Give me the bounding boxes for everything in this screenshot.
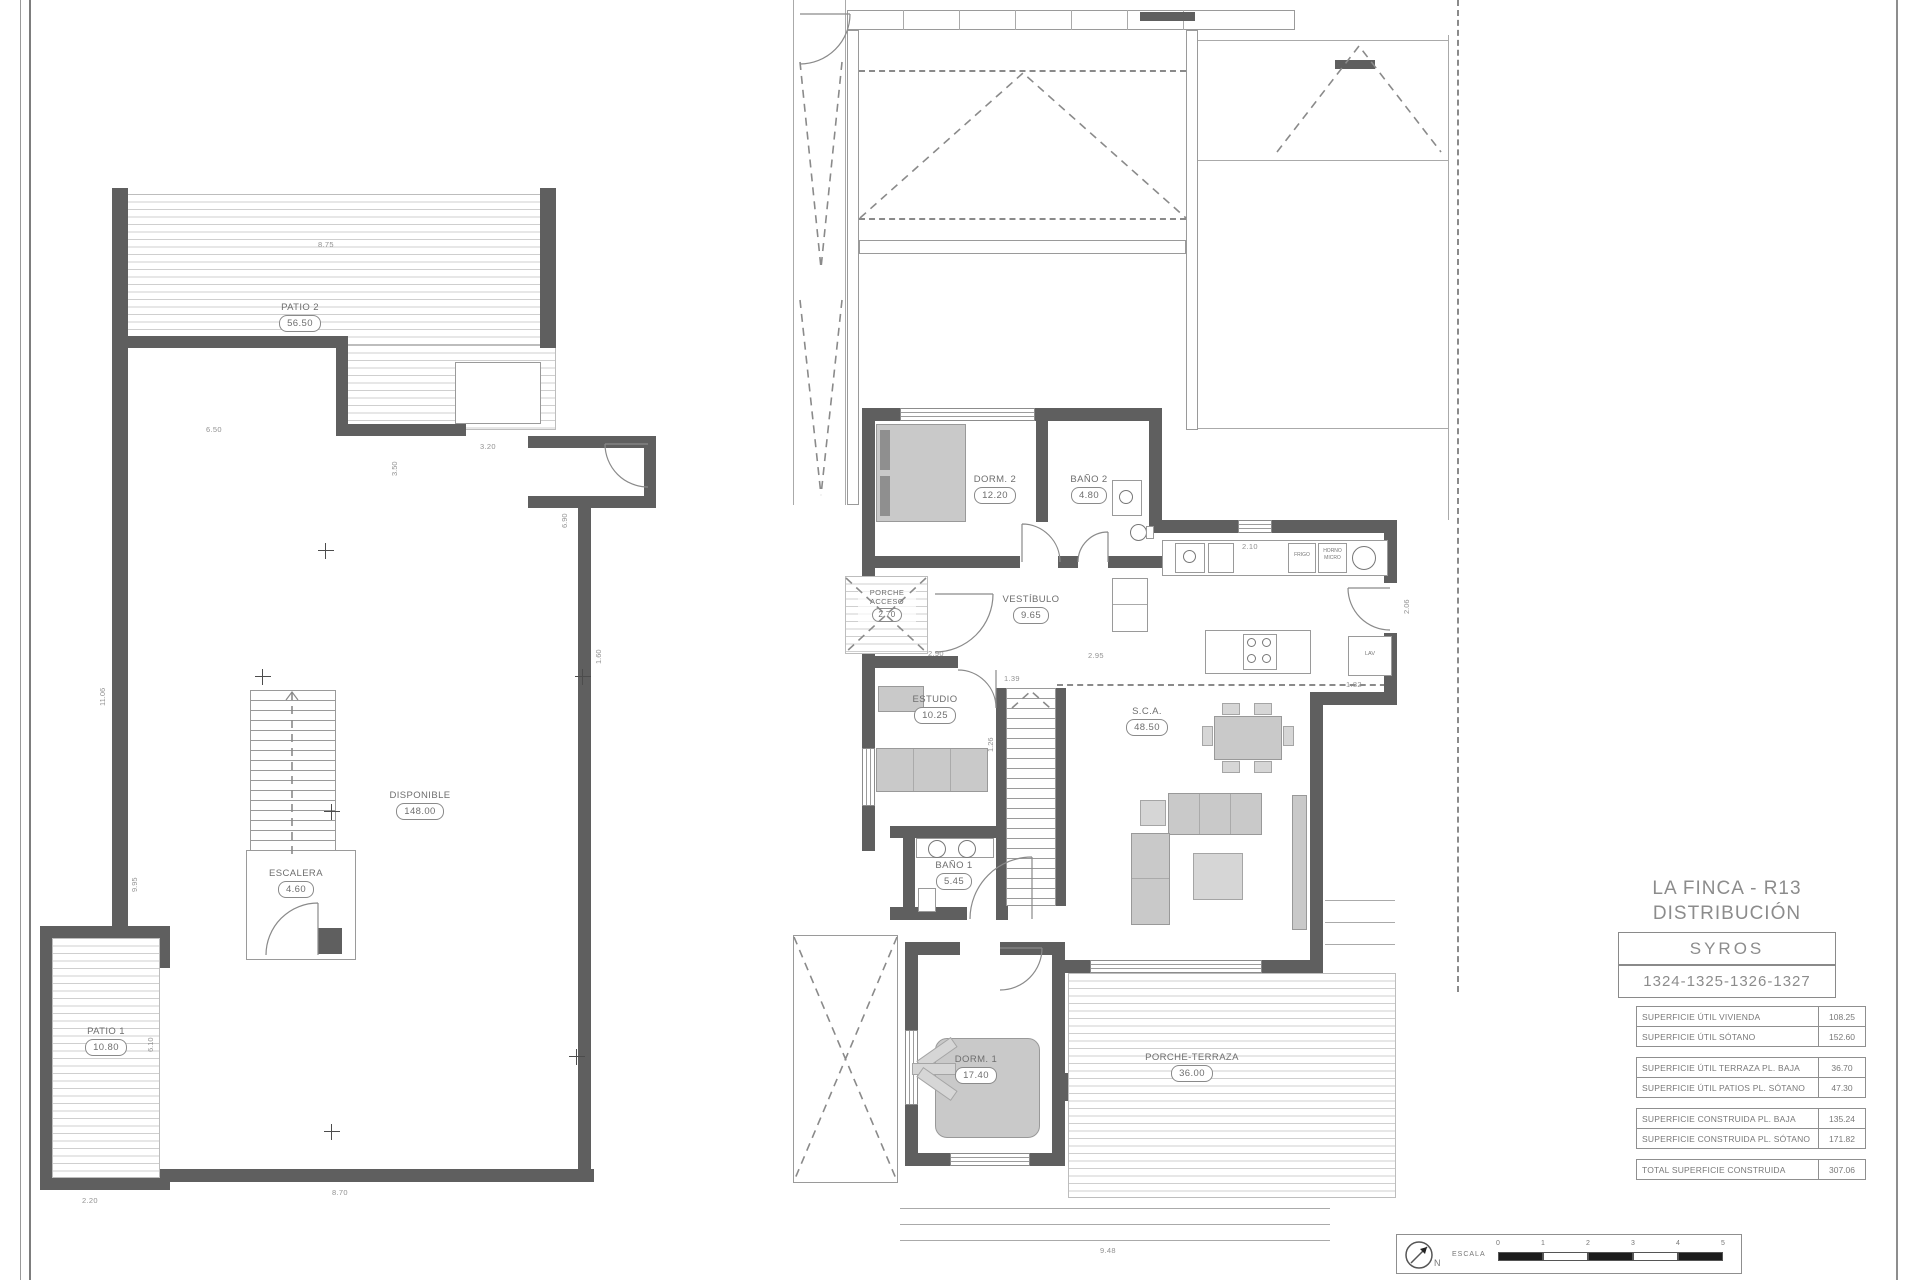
area-table-group: SUPERFICIE ÚTIL VIVIENDA 108.25 SUPERFIC… xyxy=(1636,1006,1866,1047)
plots-box: 1324-1325-1326-1327 xyxy=(1618,965,1836,998)
mullion xyxy=(959,10,960,30)
plot-line xyxy=(1198,160,1448,161)
thin-wall xyxy=(859,240,1186,254)
wall-segment xyxy=(1036,420,1048,522)
toilet xyxy=(1130,524,1147,541)
side-table xyxy=(1140,800,1166,826)
row-value: 36.70 xyxy=(1818,1058,1865,1077)
plot-line xyxy=(1448,35,1449,520)
dimension: 3.20 xyxy=(480,442,496,451)
pillow xyxy=(880,476,890,516)
room-name: PATIO 1 xyxy=(70,1026,142,1037)
wall-segment xyxy=(112,188,128,348)
area-table-group: TOTAL SUPERFICIE CONSTRUIDA 307.06 xyxy=(1636,1159,1866,1180)
ground-stairs xyxy=(1006,688,1056,906)
scale-tick: 4 xyxy=(1676,1240,1680,1247)
dining-table xyxy=(1214,716,1282,760)
window xyxy=(1238,520,1272,533)
room-name: ESTUDIO xyxy=(904,694,966,705)
dimension: 2.95 xyxy=(1088,651,1104,660)
room-area: 17.40 xyxy=(955,1067,997,1083)
wall-segment xyxy=(1052,942,1065,1166)
table-row: SUPERFICIE ÚTIL PATIOS PL. SÓTANO 47.30 xyxy=(1637,1077,1865,1097)
dimension: 6.10 xyxy=(146,1037,155,1052)
sink-bowl xyxy=(1119,490,1133,504)
dimension: 8.75 xyxy=(318,240,334,249)
ramp-arrow xyxy=(800,62,842,268)
door-swing-front xyxy=(935,594,993,652)
door-swing-bano2 xyxy=(1078,532,1108,562)
burner xyxy=(1247,638,1256,647)
dimension: 2.06 xyxy=(1402,599,1411,614)
row-label: SUPERFICIE CONSTRUIDA PL. SÓTANO xyxy=(1637,1129,1818,1148)
row-value: 108.25 xyxy=(1818,1007,1865,1026)
kitchen-sink-bowl xyxy=(1183,550,1196,563)
room-area: 36.00 xyxy=(1171,1065,1213,1081)
sofa-chaise xyxy=(1131,833,1170,925)
kitchen-module xyxy=(1208,543,1234,573)
window xyxy=(900,408,1035,421)
step-line xyxy=(900,1240,1330,1241)
sink-bowl xyxy=(958,840,976,858)
survey-cross xyxy=(318,543,334,559)
wall-segment xyxy=(890,826,1002,838)
table-row: SUPERFICIE ÚTIL SÓTANO 152.60 xyxy=(1637,1026,1865,1046)
room-area: 48.50 xyxy=(1126,719,1168,735)
row-label: SUPERFICIE ÚTIL SÓTANO xyxy=(1637,1027,1818,1046)
survey-cross xyxy=(324,804,340,820)
room-label-vestibulo: VESTÍBULO 9.65 xyxy=(995,594,1067,624)
wall-segment xyxy=(1310,692,1397,705)
room-name: DORM. 1 xyxy=(944,1054,1008,1065)
dimension: 2.90 xyxy=(928,649,944,658)
room-name: VESTÍBULO xyxy=(995,594,1067,605)
room-label-bano2: BAÑO 2 4.80 xyxy=(1060,474,1118,504)
step-line xyxy=(1325,900,1395,901)
wall-segment xyxy=(528,496,656,508)
room-area: 10.25 xyxy=(914,707,956,723)
row-value: 152.60 xyxy=(1818,1027,1865,1046)
table-row: SUPERFICIE CONSTRUIDA PL. BAJA 135.24 xyxy=(1637,1109,1865,1128)
survey-cross xyxy=(255,669,271,685)
dimension: 6.50 xyxy=(206,425,222,434)
row-value: 135.24 xyxy=(1818,1109,1865,1128)
table-row: SUPERFICIE ÚTIL TERRAZA PL. BAJA 36.70 xyxy=(1637,1058,1865,1077)
wall-segment xyxy=(1140,12,1195,21)
room-area: 4.60 xyxy=(278,881,314,897)
mullion xyxy=(1071,10,1072,30)
sofa-cushion-line xyxy=(950,749,951,791)
door-swing-entry-gate xyxy=(800,14,850,64)
dimension: 2.20 xyxy=(82,1196,98,1205)
frame-line xyxy=(20,0,21,1280)
dimension: 11.06 xyxy=(98,688,107,706)
laundry-label: LAV xyxy=(1348,651,1392,657)
sofa-cushion-line xyxy=(1132,878,1169,879)
scale-tick: 2 xyxy=(1586,1240,1590,1247)
area-table-group: SUPERFICIE CONSTRUIDA PL. BAJA 135.24 SU… xyxy=(1636,1108,1866,1149)
row-label: SUPERFICIE CONSTRUIDA PL. BAJA xyxy=(1637,1109,1818,1128)
mullion xyxy=(1127,10,1128,30)
wall-segment xyxy=(1149,520,1397,533)
wall-segment xyxy=(1335,60,1375,69)
room-label-escalera: ESCALERA 4.60 xyxy=(256,868,336,898)
step-line xyxy=(1325,922,1395,923)
micro-label: MICRO xyxy=(1318,556,1347,562)
frame-line xyxy=(29,0,31,1280)
dimension: 9.95 xyxy=(130,877,139,892)
north-label: N xyxy=(1434,1258,1442,1268)
room-label-disponible: DISPONIBLE 148.00 xyxy=(360,790,480,820)
row-label: TOTAL SUPERFICIE CONSTRUIDA xyxy=(1637,1160,1818,1179)
dimension: 1.60 xyxy=(594,649,603,664)
row-label: SUPERFICIE ÚTIL VIVIENDA xyxy=(1637,1007,1818,1026)
wall-segment xyxy=(40,926,52,1190)
basement-lobby xyxy=(455,362,541,424)
room-name: S.C.A. xyxy=(1116,706,1178,717)
door-swing-kitchen xyxy=(1348,588,1390,630)
roof-dashed-line xyxy=(859,218,1186,220)
row-label: SUPERFICIE ÚTIL PATIOS PL. SÓTANO xyxy=(1637,1078,1818,1097)
burner xyxy=(1247,654,1256,663)
wall-segment xyxy=(40,1178,170,1190)
mullion xyxy=(903,10,904,30)
chair xyxy=(1283,726,1294,746)
sofa-cushion-line xyxy=(1199,794,1200,834)
window xyxy=(950,1153,1030,1166)
chair xyxy=(1222,703,1240,715)
room-name: PORCHE-TERRAZA xyxy=(1132,1052,1252,1063)
roof-dashed-line xyxy=(859,70,1186,72)
table-row: SUPERFICIE CONSTRUIDA PL. SÓTANO 171.82 xyxy=(1637,1128,1865,1148)
porche-terraza-decking xyxy=(1068,973,1396,1198)
closet-shelf xyxy=(1113,604,1147,605)
chair xyxy=(1222,761,1240,773)
oven-label: HORNO xyxy=(1318,549,1347,555)
row-value: 307.06 xyxy=(1818,1160,1865,1179)
boundary-dashed xyxy=(1457,0,1459,992)
wall-segment xyxy=(1058,556,1078,568)
row-label: SUPERFICIE ÚTIL TERRAZA PL. BAJA xyxy=(1637,1058,1818,1077)
wall-segment xyxy=(336,336,348,432)
dimension: 3.50 xyxy=(390,461,399,476)
ramp-arrow xyxy=(800,300,842,495)
door-swing-balcony xyxy=(605,444,648,487)
sideboard xyxy=(1292,795,1307,930)
room-name: PATIO 2 xyxy=(255,302,345,313)
survey-cross xyxy=(569,1049,585,1065)
wall-segment xyxy=(336,424,466,436)
room-label-sca: S.C.A. 48.50 xyxy=(1116,706,1178,736)
scale-tick: 3 xyxy=(1631,1240,1635,1247)
plot-line xyxy=(1198,428,1448,429)
room-area: 4.80 xyxy=(1071,487,1107,503)
room-name: DISPONIBLE xyxy=(360,790,480,801)
row-value: 47.30 xyxy=(1818,1078,1865,1097)
room-area: 148.00 xyxy=(396,803,443,819)
wall-segment xyxy=(1108,556,1162,568)
plot-line xyxy=(1198,40,1448,41)
plot-line xyxy=(845,0,846,505)
patio1-decking xyxy=(52,938,160,1178)
side-terrace xyxy=(793,935,898,1183)
wall-segment xyxy=(862,806,875,851)
scale-label: ESCALA xyxy=(1452,1251,1486,1258)
shower-tray xyxy=(918,888,936,912)
room-label-porche-acceso: PORCHE ACCESO 2.70 xyxy=(858,588,916,622)
scale-tick: 1 xyxy=(1541,1240,1545,1247)
room-label-porche-terraza: PORCHE-TERRAZA 36.00 xyxy=(1132,1052,1252,1082)
wall-segment xyxy=(1149,408,1162,533)
wall-segment xyxy=(112,1169,594,1182)
mullion xyxy=(1015,10,1016,30)
room-area: 9.65 xyxy=(1013,607,1049,623)
floor-plan-sheet: PATIO 2 56.50 DISPONIBLE 148.00 ESCALERA… xyxy=(0,0,1920,1280)
room-name: ESCALERA xyxy=(256,868,336,879)
dimension: 2.10 xyxy=(1242,542,1258,551)
sofa-cushion-line xyxy=(913,749,914,791)
room-name: DORM. 2 xyxy=(950,474,1040,485)
pillow xyxy=(880,430,890,470)
survey-cross xyxy=(575,669,591,685)
step-line xyxy=(900,1224,1330,1225)
room-area: 12.20 xyxy=(974,487,1016,503)
wall-segment xyxy=(40,926,170,938)
room-label-patio1: PATIO 1 10.80 xyxy=(70,1026,142,1056)
survey-cross xyxy=(324,1124,340,1140)
room-name: BAÑO 1 xyxy=(924,860,984,871)
burner xyxy=(1262,638,1271,647)
estudio-sofa xyxy=(876,748,988,792)
wall-segment xyxy=(318,928,342,954)
basement-stairs xyxy=(250,690,336,852)
scale-segment xyxy=(1543,1252,1588,1261)
roof-slope-lines xyxy=(860,73,1186,218)
room-name: BAÑO 2 xyxy=(1060,474,1118,485)
sofa-cushion-line xyxy=(1230,794,1231,834)
fridge-label: FRIGO xyxy=(1288,553,1316,559)
plot-line xyxy=(793,0,794,505)
scale-segment xyxy=(1498,1252,1543,1261)
frame-line xyxy=(1896,0,1898,1280)
thin-wall xyxy=(1186,30,1198,430)
scale-segment xyxy=(1678,1252,1723,1261)
drawing-title: DISTRIBUCIÓN xyxy=(1597,903,1857,925)
scale-segment xyxy=(1588,1252,1633,1261)
sofa-back xyxy=(1168,793,1262,835)
door-swing-dorm2 xyxy=(1022,524,1060,562)
project-title: LA FINCA - R13 xyxy=(1597,878,1857,900)
scale-tick: 0 xyxy=(1496,1240,1500,1247)
room-name: PORCHE ACCESO xyxy=(858,588,916,606)
stair-rail xyxy=(996,688,1006,906)
wall-segment xyxy=(862,556,1020,568)
sink-bowl xyxy=(928,840,946,858)
room-label-dorm1: DORM. 1 17.40 xyxy=(944,1054,1008,1084)
dimension: 1.39 xyxy=(1004,674,1020,683)
scale-segment xyxy=(1633,1252,1678,1261)
row-value: 171.82 xyxy=(1818,1129,1865,1148)
room-area: 10.80 xyxy=(85,1039,127,1055)
table-row: TOTAL SUPERFICIE CONSTRUIDA 307.06 xyxy=(1637,1160,1865,1179)
wall-segment xyxy=(1310,692,1323,972)
window xyxy=(1090,960,1262,973)
window xyxy=(862,748,875,806)
step-line xyxy=(1325,944,1395,945)
wall-segment xyxy=(112,336,344,348)
room-label-dorm2: DORM. 2 12.20 xyxy=(950,474,1040,504)
toilet-tank xyxy=(1146,526,1154,539)
coffee-table xyxy=(1193,853,1243,900)
scale-tick: 5 xyxy=(1721,1240,1725,1247)
stair-rail xyxy=(1056,688,1066,906)
chair xyxy=(1254,703,1272,715)
area-table-group: SUPERFICIE ÚTIL TERRAZA PL. BAJA 36.70 S… xyxy=(1636,1057,1866,1098)
step-line xyxy=(900,1208,1330,1209)
room-area: 56.50 xyxy=(279,315,321,331)
dimension: 6.90 xyxy=(560,513,569,528)
wall-segment xyxy=(528,436,656,448)
room-area: 2.70 xyxy=(872,608,901,622)
burner xyxy=(1262,654,1271,663)
dimension: 8.70 xyxy=(332,1188,348,1197)
dimension: 1.82 xyxy=(1346,680,1362,689)
wall-segment xyxy=(540,188,556,348)
room-label-bano1: BAÑO 1 5.45 xyxy=(924,860,984,890)
dimension: 9.48 xyxy=(1100,1246,1116,1255)
round-fixture xyxy=(1352,546,1376,570)
chair xyxy=(1202,726,1213,746)
chair xyxy=(1254,761,1272,773)
closet xyxy=(1112,578,1148,632)
wall-segment xyxy=(578,496,591,1182)
room-area: 5.45 xyxy=(936,873,972,889)
thin-wall xyxy=(847,30,859,505)
room-label-patio2: PATIO 2 56.50 xyxy=(255,302,345,332)
room-label-estudio: ESTUDIO 10.25 xyxy=(904,694,966,724)
table-row: SUPERFICIE ÚTIL VIVIENDA 108.25 xyxy=(1637,1007,1865,1026)
dimension: 1.26 xyxy=(986,737,995,752)
model-box: SYROS xyxy=(1618,932,1836,965)
